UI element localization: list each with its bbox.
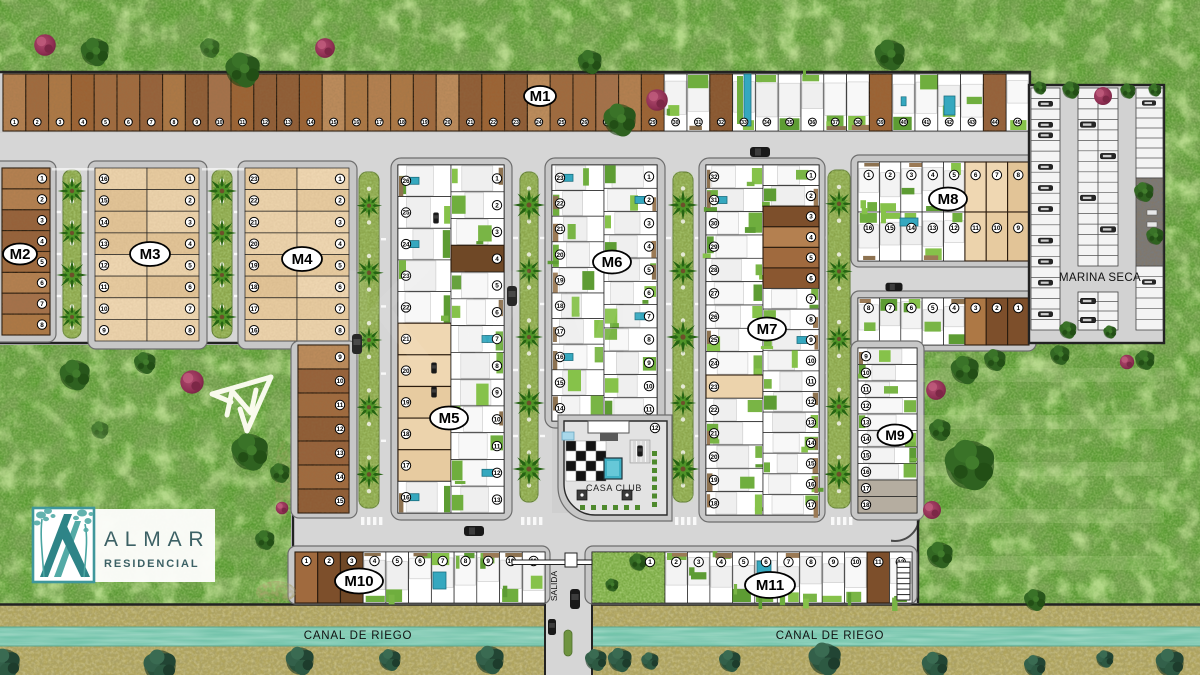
svg-text:3: 3 <box>40 217 44 224</box>
svg-text:1: 1 <box>648 559 652 566</box>
svg-text:2: 2 <box>647 197 651 204</box>
svg-text:M8: M8 <box>938 191 959 208</box>
svg-text:M7: M7 <box>757 321 778 338</box>
svg-text:2: 2 <box>995 305 999 312</box>
svg-text:20: 20 <box>250 241 258 248</box>
svg-text:1: 1 <box>867 172 871 179</box>
svg-text:22: 22 <box>250 198 258 205</box>
svg-text:36: 36 <box>810 120 816 126</box>
svg-text:8: 8 <box>40 322 44 329</box>
svg-text:6: 6 <box>974 172 978 179</box>
svg-text:14: 14 <box>100 219 108 226</box>
svg-text:5: 5 <box>104 120 107 126</box>
svg-text:1: 1 <box>809 173 813 180</box>
svg-text:17: 17 <box>376 120 382 126</box>
svg-text:16: 16 <box>807 481 815 488</box>
svg-text:44: 44 <box>992 120 998 126</box>
svg-text:23: 23 <box>710 384 718 391</box>
svg-text:7: 7 <box>441 558 445 565</box>
svg-text:5: 5 <box>809 255 813 262</box>
svg-text:6: 6 <box>127 120 130 126</box>
svg-text:20: 20 <box>445 120 451 126</box>
svg-text:17: 17 <box>862 485 870 492</box>
svg-text:15: 15 <box>807 461 815 468</box>
svg-text:2: 2 <box>809 193 813 200</box>
svg-text:9: 9 <box>832 559 836 566</box>
svg-text:13: 13 <box>336 450 344 457</box>
svg-text:12: 12 <box>100 263 108 270</box>
svg-text:31: 31 <box>710 197 718 204</box>
svg-text:28: 28 <box>710 267 718 274</box>
svg-text:7: 7 <box>188 306 192 313</box>
svg-text:3: 3 <box>188 219 192 226</box>
svg-text:19: 19 <box>402 400 410 407</box>
svg-text:CANAL DE RIEGO: CANAL DE RIEGO <box>304 630 413 642</box>
svg-text:18: 18 <box>402 431 410 438</box>
svg-text:2: 2 <box>40 197 44 204</box>
svg-text:23: 23 <box>513 120 519 126</box>
svg-text:CANAL DE RIEGO: CANAL DE RIEGO <box>776 630 885 642</box>
svg-text:11: 11 <box>875 559 882 566</box>
svg-text:M5: M5 <box>439 410 460 427</box>
svg-text:23: 23 <box>556 175 564 182</box>
svg-text:9: 9 <box>495 390 499 397</box>
svg-text:32: 32 <box>718 120 724 126</box>
svg-text:8: 8 <box>1017 172 1021 179</box>
svg-text:24: 24 <box>710 361 718 368</box>
svg-text:2: 2 <box>495 202 499 209</box>
svg-text:5: 5 <box>396 558 400 565</box>
svg-text:5: 5 <box>742 559 746 566</box>
svg-text:3: 3 <box>647 220 651 227</box>
svg-text:16: 16 <box>402 494 410 501</box>
svg-text:31: 31 <box>696 120 702 126</box>
svg-text:22: 22 <box>490 120 496 126</box>
svg-text:15: 15 <box>862 452 870 459</box>
svg-text:1: 1 <box>13 120 16 126</box>
svg-text:4: 4 <box>931 172 935 179</box>
svg-text:12: 12 <box>862 403 870 410</box>
svg-text:21: 21 <box>468 120 474 126</box>
svg-text:15: 15 <box>331 120 337 126</box>
svg-text:10: 10 <box>862 370 870 377</box>
svg-text:20: 20 <box>710 454 718 461</box>
svg-text:12: 12 <box>807 399 815 406</box>
svg-text:4: 4 <box>373 558 377 565</box>
svg-text:11: 11 <box>101 284 108 291</box>
svg-text:1: 1 <box>647 174 651 181</box>
svg-text:3: 3 <box>809 214 813 221</box>
svg-text:9: 9 <box>809 337 813 344</box>
svg-text:15: 15 <box>336 498 344 505</box>
svg-text:RESIDENCIAL: RESIDENCIAL <box>104 558 199 570</box>
svg-text:10: 10 <box>217 120 223 126</box>
svg-text:4: 4 <box>719 559 723 566</box>
svg-text:18: 18 <box>399 120 405 126</box>
svg-text:18: 18 <box>250 284 258 291</box>
svg-text:3: 3 <box>910 172 914 179</box>
svg-text:6: 6 <box>188 284 192 291</box>
svg-text:16: 16 <box>862 469 870 476</box>
svg-text:14: 14 <box>908 225 916 232</box>
svg-text:11: 11 <box>494 443 501 450</box>
svg-text:21: 21 <box>710 431 718 438</box>
svg-text:41: 41 <box>924 120 930 126</box>
svg-text:2: 2 <box>188 198 192 205</box>
svg-text:2: 2 <box>338 198 342 205</box>
svg-text:16: 16 <box>250 327 258 334</box>
svg-text:15: 15 <box>887 225 895 232</box>
svg-text:12: 12 <box>951 225 959 232</box>
svg-text:SALIDA: SALIDA <box>549 571 559 602</box>
svg-text:29: 29 <box>710 244 718 251</box>
svg-text:M3: M3 <box>140 246 161 263</box>
svg-text:34: 34 <box>764 120 770 126</box>
svg-text:43: 43 <box>969 120 975 126</box>
svg-text:3: 3 <box>697 559 701 566</box>
svg-text:9: 9 <box>486 558 490 565</box>
svg-text:21: 21 <box>556 226 564 233</box>
svg-text:13: 13 <box>100 241 108 248</box>
svg-text:4: 4 <box>81 120 84 126</box>
svg-text:7: 7 <box>995 172 999 179</box>
svg-text:6: 6 <box>809 275 813 282</box>
svg-text:21: 21 <box>250 219 258 226</box>
svg-text:3: 3 <box>59 120 62 126</box>
svg-text:17: 17 <box>250 306 258 313</box>
svg-text:3: 3 <box>338 219 342 226</box>
svg-text:9: 9 <box>195 120 198 126</box>
svg-text:35: 35 <box>787 120 793 126</box>
svg-text:15: 15 <box>100 198 108 205</box>
svg-text:14: 14 <box>308 120 314 126</box>
svg-text:39: 39 <box>878 120 884 126</box>
svg-text:13: 13 <box>493 497 501 504</box>
svg-text:M1: M1 <box>530 88 551 105</box>
svg-text:14: 14 <box>556 405 564 412</box>
svg-text:13: 13 <box>285 120 291 126</box>
svg-text:5: 5 <box>40 259 44 266</box>
svg-text:4: 4 <box>809 234 813 241</box>
svg-text:25: 25 <box>559 120 565 126</box>
svg-text:14: 14 <box>336 474 344 481</box>
svg-text:22: 22 <box>556 201 564 208</box>
svg-text:26: 26 <box>402 178 410 185</box>
svg-text:12: 12 <box>493 470 501 477</box>
svg-text:11: 11 <box>240 120 246 126</box>
svg-text:5: 5 <box>952 172 956 179</box>
svg-text:M9: M9 <box>885 427 905 443</box>
svg-text:10: 10 <box>100 306 108 313</box>
svg-text:6: 6 <box>40 280 44 287</box>
svg-text:1: 1 <box>495 176 499 183</box>
svg-text:8: 8 <box>867 305 871 312</box>
svg-text:16: 16 <box>865 225 873 232</box>
svg-text:12: 12 <box>336 426 344 433</box>
svg-text:33: 33 <box>741 120 747 126</box>
svg-text:27: 27 <box>710 291 718 298</box>
svg-text:24: 24 <box>536 120 542 126</box>
svg-text:2: 2 <box>674 559 678 566</box>
svg-text:16: 16 <box>100 176 108 183</box>
svg-text:25: 25 <box>710 337 718 344</box>
svg-text:26: 26 <box>582 120 588 126</box>
svg-text:9: 9 <box>102 327 106 334</box>
svg-text:8: 8 <box>464 558 468 565</box>
svg-text:1: 1 <box>338 176 342 183</box>
svg-text:14: 14 <box>807 440 815 447</box>
svg-text:6: 6 <box>418 558 422 565</box>
svg-text:M4: M4 <box>292 251 313 268</box>
svg-text:1: 1 <box>1017 305 1021 312</box>
svg-text:1: 1 <box>188 176 192 183</box>
svg-text:19: 19 <box>250 263 258 270</box>
svg-text:8: 8 <box>188 327 192 334</box>
svg-text:40: 40 <box>901 120 907 126</box>
svg-text:18: 18 <box>710 501 718 508</box>
svg-text:13: 13 <box>929 225 937 232</box>
svg-text:13: 13 <box>862 419 870 426</box>
svg-text:4: 4 <box>952 305 956 312</box>
svg-text:ALMAR: ALMAR <box>104 528 210 551</box>
svg-text:7: 7 <box>888 305 892 312</box>
svg-text:12: 12 <box>262 120 268 126</box>
svg-text:8: 8 <box>173 120 176 126</box>
svg-text:6: 6 <box>764 559 768 566</box>
svg-text:10: 10 <box>807 358 815 365</box>
svg-text:45: 45 <box>1015 120 1021 126</box>
svg-text:11: 11 <box>646 407 653 414</box>
svg-text:19: 19 <box>422 120 428 126</box>
svg-text:4: 4 <box>188 241 192 248</box>
svg-text:38: 38 <box>855 120 861 126</box>
svg-text:7: 7 <box>787 559 791 566</box>
svg-text:11: 11 <box>972 225 979 232</box>
svg-text:37: 37 <box>832 120 838 126</box>
svg-text:25: 25 <box>402 210 410 217</box>
svg-text:18: 18 <box>862 502 870 509</box>
svg-text:22: 22 <box>710 407 718 414</box>
svg-text:MARINA SECA: MARINA SECA <box>1059 272 1141 284</box>
svg-text:32: 32 <box>710 174 718 181</box>
svg-text:8: 8 <box>809 559 813 566</box>
svg-text:12: 12 <box>651 425 659 432</box>
svg-text:30: 30 <box>673 120 679 126</box>
svg-text:7: 7 <box>809 296 813 303</box>
svg-text:6: 6 <box>910 305 914 312</box>
svg-text:17: 17 <box>807 502 815 509</box>
svg-text:M10: M10 <box>344 573 373 590</box>
svg-text:1: 1 <box>40 176 44 183</box>
svg-text:M2: M2 <box>10 246 31 263</box>
svg-text:10: 10 <box>493 417 501 424</box>
svg-text:8: 8 <box>809 317 813 324</box>
svg-text:M11: M11 <box>756 577 784 594</box>
svg-text:5: 5 <box>931 305 935 312</box>
svg-text:CASA CLUB: CASA CLUB <box>586 483 642 493</box>
svg-text:1: 1 <box>305 558 309 565</box>
svg-text:10: 10 <box>993 225 1001 232</box>
svg-text:19: 19 <box>710 477 718 484</box>
svg-text:4: 4 <box>40 238 44 245</box>
svg-text:11: 11 <box>808 378 815 385</box>
svg-text:17: 17 <box>402 463 410 470</box>
svg-text:29: 29 <box>650 120 656 126</box>
svg-text:11: 11 <box>863 386 870 393</box>
svg-text:3: 3 <box>350 558 354 565</box>
svg-text:2: 2 <box>327 558 331 565</box>
svg-text:26: 26 <box>710 314 718 321</box>
svg-text:13: 13 <box>807 420 815 427</box>
svg-text:2: 2 <box>888 172 892 179</box>
svg-text:5: 5 <box>188 263 192 270</box>
svg-text:7: 7 <box>40 301 44 308</box>
svg-text:3: 3 <box>974 305 978 312</box>
svg-text:42: 42 <box>946 120 952 126</box>
svg-text:KVM: KVM <box>340 242 659 388</box>
svg-text:16: 16 <box>354 120 360 126</box>
svg-text:14: 14 <box>862 436 870 443</box>
svg-text:7: 7 <box>150 120 153 126</box>
svg-text:11: 11 <box>337 402 344 409</box>
svg-text:9: 9 <box>864 353 868 360</box>
svg-text:23: 23 <box>250 176 258 183</box>
svg-text:10: 10 <box>852 559 860 566</box>
svg-text:2: 2 <box>36 120 39 126</box>
svg-text:30: 30 <box>710 221 718 228</box>
svg-text:3: 3 <box>495 229 499 236</box>
svg-text:9: 9 <box>1017 225 1021 232</box>
